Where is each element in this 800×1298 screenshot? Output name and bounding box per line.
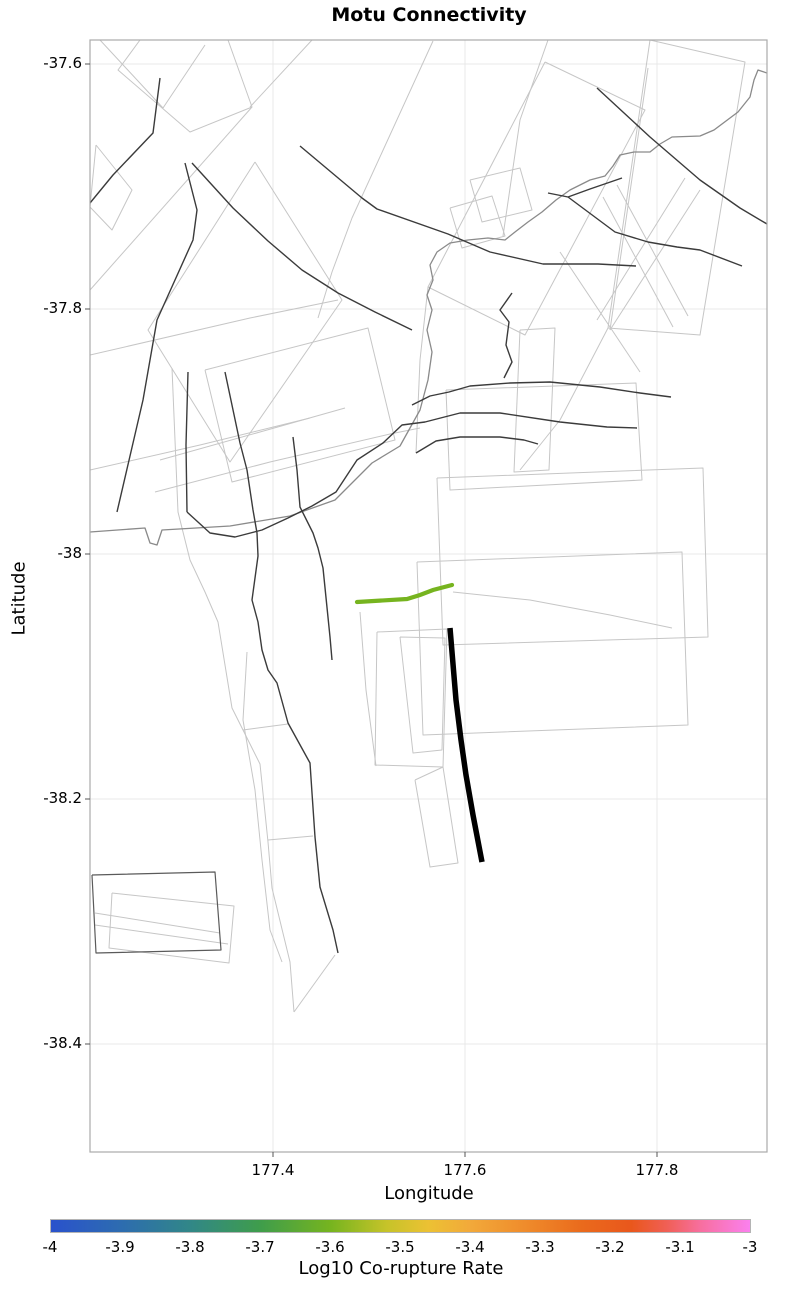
- light-fault-trace: [597, 178, 685, 320]
- y-tick-label: -37.6: [12, 54, 82, 72]
- light-fault-trace: [294, 955, 335, 1012]
- colorbar-tick-label: -3.4: [455, 1238, 484, 1256]
- dark-fault-trace: [117, 163, 197, 512]
- light-fault-trace: [520, 328, 608, 470]
- light-fault-trace: [453, 592, 672, 628]
- light-fault-trace: [617, 185, 688, 316]
- x-axis-label: Longitude: [90, 1183, 768, 1204]
- y-tick-label: -38.4: [12, 1034, 82, 1052]
- light-fault-trace: [375, 629, 447, 767]
- light-fault-trace: [90, 145, 132, 230]
- light-fault-trace: [205, 328, 395, 482]
- colorbar-tick-label: -3.3: [525, 1238, 554, 1256]
- figure: Motu Connectivity Latitude Longitude -37…: [0, 0, 800, 1298]
- colorbar-gradient: [50, 1219, 751, 1233]
- light-fault-trace: [450, 196, 505, 248]
- y-tick-label: -38: [12, 544, 82, 562]
- colorbar-tick-label: -3.1: [665, 1238, 694, 1256]
- colorbar-tick-label: -3.2: [595, 1238, 624, 1256]
- light-fault-trace: [415, 767, 458, 867]
- y-tick-label: -38.2: [12, 789, 82, 807]
- light-fault-trace: [95, 925, 228, 944]
- dark-fault-trace: [500, 293, 512, 378]
- x-tick-label: 177.8: [636, 1161, 679, 1179]
- dark-fault-trace: [293, 437, 332, 660]
- colorbar-tick-label: -3.6: [315, 1238, 344, 1256]
- light-fault-trace: [90, 418, 310, 470]
- light-fault-trace: [514, 328, 555, 472]
- light-fault-trace: [90, 300, 338, 355]
- light-fault-trace: [610, 68, 648, 330]
- y-tick-label: -37.8: [12, 299, 82, 317]
- light-fault-trace: [155, 428, 420, 492]
- light-fault-trace: [243, 652, 282, 962]
- light-fault-trace: [243, 724, 288, 730]
- light-fault-trace: [470, 168, 532, 222]
- colorbar-tick-label: -4: [43, 1238, 58, 1256]
- light-fault-trace: [95, 913, 220, 933]
- colorbar-tick-label: -3.5: [385, 1238, 414, 1256]
- map-canvas: [0, 0, 800, 1298]
- colorbar-tick-label: -3.9: [105, 1238, 134, 1256]
- colorbar-label: Log10 Co-rupture Rate: [90, 1258, 712, 1279]
- x-tick-label: 177.6: [444, 1161, 487, 1179]
- dark-fault-trace: [412, 382, 671, 405]
- plot-frame: [90, 40, 767, 1152]
- dark-fault-trace: [300, 146, 636, 266]
- colorbar-tick-label: -3.7: [245, 1238, 274, 1256]
- dark-fault-trace: [192, 163, 412, 330]
- dark-fault-trace: [186, 372, 188, 512]
- dark-fault-trace: [548, 178, 622, 197]
- chart-title: Motu Connectivity: [90, 4, 768, 26]
- colorbar-tick-label: -3: [743, 1238, 758, 1256]
- light-fault-trace: [400, 637, 445, 753]
- light-fault-trace: [118, 40, 252, 132]
- light-fault-trace: [268, 836, 313, 840]
- light-fault-trace: [360, 612, 376, 766]
- light-fault-trace: [160, 408, 345, 460]
- green-corupture-segment: [357, 585, 452, 602]
- light-fault-trace: [250, 40, 312, 107]
- coastline: [90, 70, 767, 545]
- light-fault-trace: [608, 40, 745, 335]
- black-source-segment: [450, 628, 482, 862]
- light-fault-trace: [90, 107, 252, 290]
- colorbar-tick-label: -3.8: [175, 1238, 204, 1256]
- light-fault-trace: [318, 41, 433, 318]
- dark-fault-trace: [416, 437, 538, 453]
- light-fault-trace: [100, 40, 205, 108]
- x-tick-label: 177.4: [252, 1161, 295, 1179]
